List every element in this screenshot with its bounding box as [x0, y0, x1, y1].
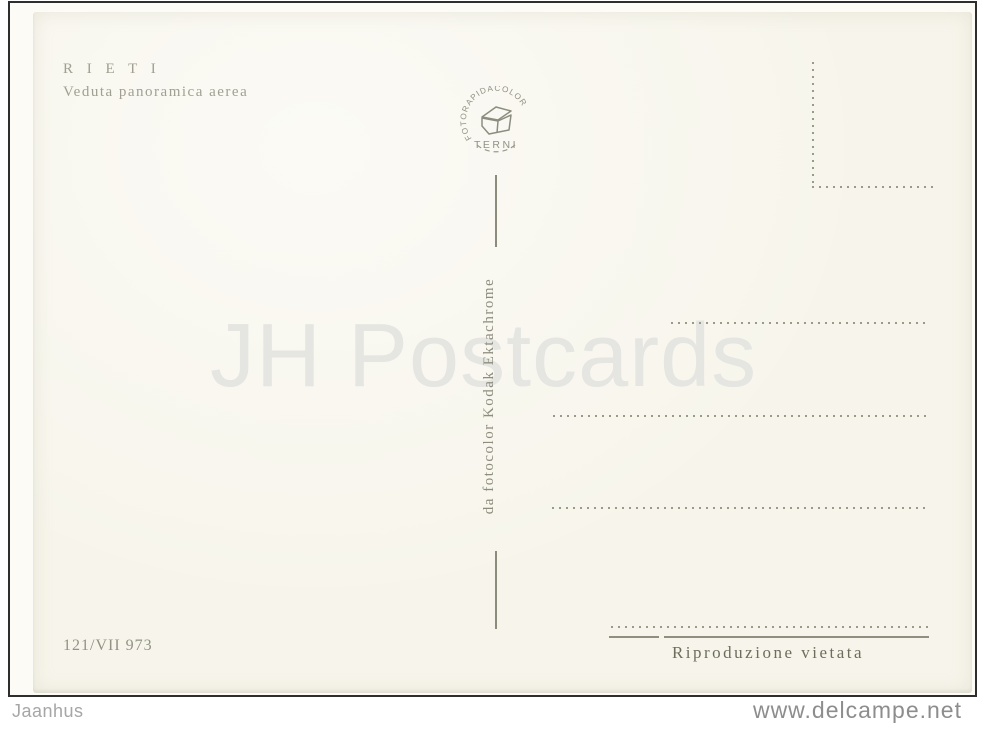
stamp-box-bottom-edge — [812, 186, 937, 188]
footer-site-url: www.delcampe.net — [600, 697, 962, 724]
reproduction-notice: Riproduzione vietata — [613, 643, 923, 663]
signature-dotted-line — [611, 626, 928, 628]
stamp-box-left-edge — [812, 62, 814, 188]
address-line-3 — [552, 507, 929, 509]
signature-solid-line-left — [609, 636, 659, 638]
postcard-subtitle: Veduta panoramica aerea — [63, 84, 248, 101]
page: JH Postcards R I E T I Veduta panoramica… — [0, 0, 987, 730]
signature-solid-line-right — [664, 636, 929, 638]
center-divider-bottom-line — [495, 551, 497, 629]
film-credit-vertical-text: da fotocolor Kodak Ektachrome — [481, 246, 503, 546]
stamp-city-text: TERNI — [474, 139, 518, 151]
publisher-stamp-logo: FOTORAPIDACOLOR TERNI — [456, 86, 536, 160]
address-line-1 — [671, 322, 925, 324]
center-divider-top-line — [495, 175, 497, 247]
fotorapidacolor-bird-icon — [482, 107, 511, 134]
footer-seller-name: Jaanhus — [12, 701, 84, 722]
address-line-2 — [553, 415, 928, 417]
postcard-title: R I E T I — [63, 61, 161, 78]
catalog-number: 121/VII 973 — [63, 637, 153, 655]
